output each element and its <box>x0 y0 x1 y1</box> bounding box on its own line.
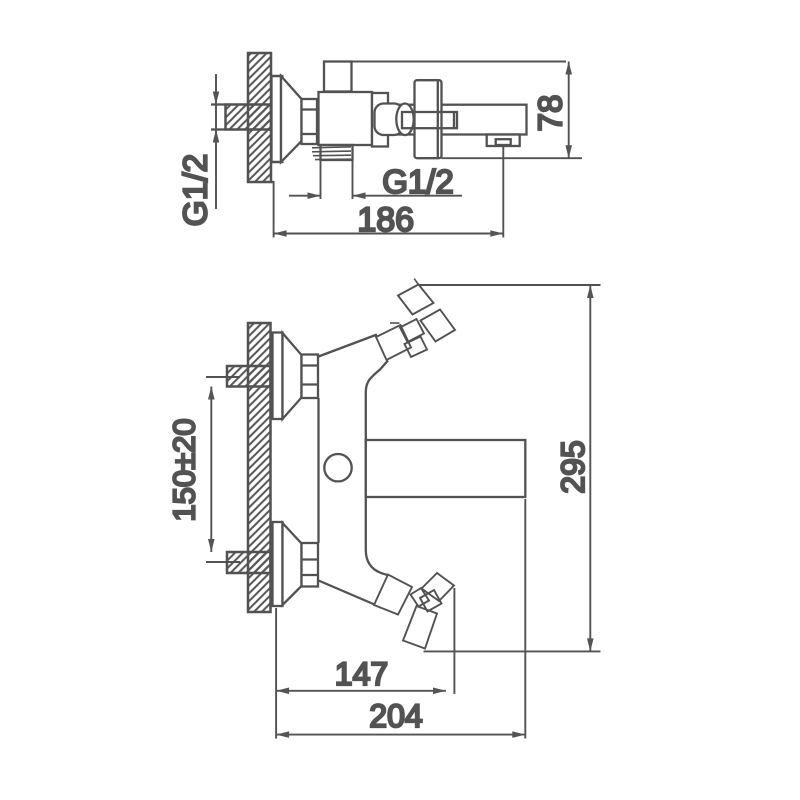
svg-text:G1/2: G1/2 <box>382 163 454 200</box>
svg-text:78: 78 <box>532 95 569 132</box>
svg-text:295: 295 <box>555 440 591 493</box>
svg-text:147: 147 <box>335 656 388 692</box>
svg-text:186: 186 <box>357 201 414 239</box>
svg-text:150±20: 150±20 <box>167 418 202 521</box>
svg-text:204: 204 <box>369 698 422 734</box>
svg-text:G1/2: G1/2 <box>178 154 215 227</box>
